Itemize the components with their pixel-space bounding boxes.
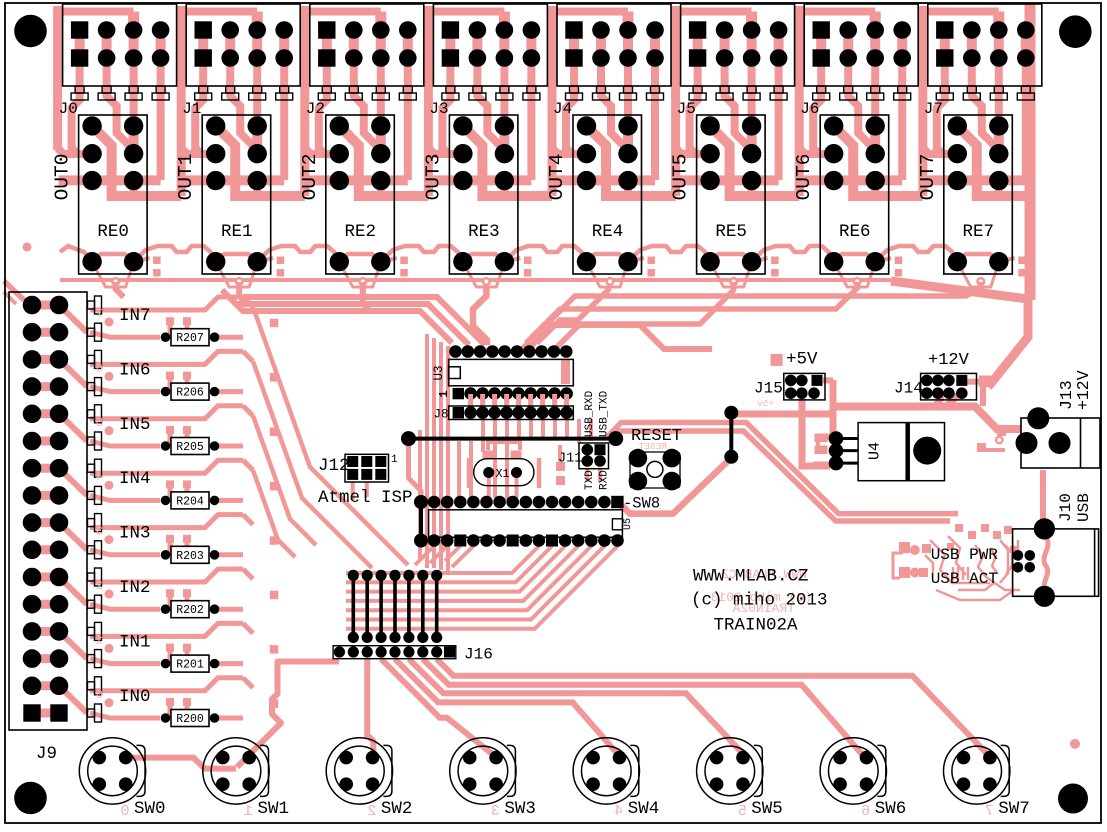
svg-text:R207: R207 [176,332,204,345]
svg-text:R200: R200 [176,713,204,726]
svg-text:J4: J4 [553,100,572,118]
svg-text:J7: J7 [924,100,943,118]
svg-text:SW0: SW0 [134,799,166,819]
svg-text:RE2: RE2 [345,222,377,242]
svg-text:7: 7 [96,307,103,321]
svg-text:RE3: RE3 [468,222,500,242]
svg-text:R206: R206 [176,387,204,400]
svg-text:5: 5 [96,416,103,430]
svg-text:OUT5: OUT5 [670,154,692,201]
svg-text:+5V: +5V [786,350,818,370]
svg-text:R201: R201 [176,659,204,672]
svg-text:SW5: SW5 [751,799,783,819]
svg-text:USB_TXD: USB_TXD [599,390,611,437]
svg-text:6: 6 [96,361,103,375]
svg-text:USB_RXD: USB_RXD [584,390,596,437]
svg-text:OUT6: OUT6 [793,154,815,201]
svg-text:1: 1 [244,803,253,820]
svg-text:OUT4: OUT4 [546,154,568,201]
svg-text:RE1: RE1 [221,222,253,242]
svg-text:R205: R205 [176,441,204,454]
svg-text:IN1: IN1 [119,632,151,652]
svg-text:OUT2: OUT2 [299,154,321,201]
svg-text:OUT7: OUT7 [917,154,939,201]
svg-text:6: 6 [861,803,870,820]
svg-text:SW3: SW3 [504,799,536,819]
svg-text:RE6: RE6 [839,222,871,242]
svg-text:RE4: RE4 [592,222,624,242]
svg-text:J15: J15 [754,380,783,398]
svg-text:TRAIN02A: TRAIN02A [714,616,799,636]
svg-text:7: 7 [985,803,994,820]
svg-text:J6: J6 [800,100,819,118]
svg-text:IN2: IN2 [119,578,151,598]
svg-text:J11: J11 [558,452,582,467]
svg-text:R204: R204 [176,495,204,508]
svg-text:J14: J14 [894,380,923,398]
svg-text:2: 2 [96,579,103,593]
svg-text:X1: X1 [496,468,510,481]
svg-text:4: 4 [614,803,623,820]
svg-text:RE0: RE0 [97,222,129,242]
svg-text:J8: J8 [434,408,449,422]
svg-text:TXD: TXD [584,470,596,490]
svg-text:U4: U4 [867,442,884,460]
svg-text:J9: J9 [36,744,57,764]
svg-text:+5v: +5v [757,398,774,409]
svg-text:J12: J12 [318,456,350,476]
svg-text:(c) miho 2013: (c) miho 2013 [691,591,828,611]
svg-text:U5: U5 [623,518,634,530]
svg-text:IN0: IN0 [119,687,151,707]
svg-text:J0: J0 [59,100,78,118]
svg-text:+12V: +12V [928,351,970,370]
svg-text:IN5: IN5 [119,415,151,435]
svg-text:R202: R202 [176,604,204,617]
svg-text:RXD: RXD [599,470,611,490]
svg-text:IN3: IN3 [119,524,151,544]
svg-text:WWW.MLAB.CZ: WWW.MLAB.CZ [693,567,809,587]
svg-text:Atmel ISP: Atmel ISP [318,488,413,508]
svg-text:3: 3 [96,525,103,539]
svg-text:OUT1: OUT1 [175,154,197,201]
svg-text:SW1: SW1 [258,799,290,819]
svg-text:J2: J2 [306,100,325,118]
svg-text:J1: J1 [182,100,201,118]
svg-text:1: 1 [391,454,398,466]
svg-text:+12V: +12V [1074,370,1093,410]
svg-text:-SW8: -SW8 [623,495,660,513]
svg-text:IN4: IN4 [119,469,151,489]
svg-text:5: 5 [738,803,747,820]
svg-text:R203: R203 [176,550,204,563]
svg-text:J16: J16 [464,646,493,664]
svg-text:OUT0: OUT0 [52,154,74,201]
svg-text:IN7: IN7 [119,306,151,326]
svg-text:IN6: IN6 [119,360,151,380]
svg-text:SW7: SW7 [998,799,1030,819]
svg-text:USB ACT: USB ACT [931,570,998,588]
svg-text:1: 1 [96,633,103,647]
svg-text:0: 0 [120,803,129,820]
svg-text:J3: J3 [429,100,448,118]
svg-text:SW4: SW4 [628,799,660,819]
svg-text:SW2: SW2 [381,799,413,819]
svg-text:OUT3: OUT3 [422,154,444,201]
svg-text:1: 1 [437,390,451,397]
svg-text:J10: J10 [1057,493,1075,522]
svg-text:SW6: SW6 [875,799,907,819]
svg-text:USB: USB [1075,493,1093,522]
svg-text:U3: U3 [432,365,446,380]
svg-text:USB PWR: USB PWR [931,546,999,564]
svg-text:RE5: RE5 [715,222,747,242]
svg-text:0: 0 [96,688,103,702]
svg-text:RE7: RE7 [963,222,995,242]
svg-text:2: 2 [367,803,376,820]
svg-text:3: 3 [491,803,500,820]
svg-text:J5: J5 [677,100,696,118]
svg-text:4: 4 [96,470,103,484]
